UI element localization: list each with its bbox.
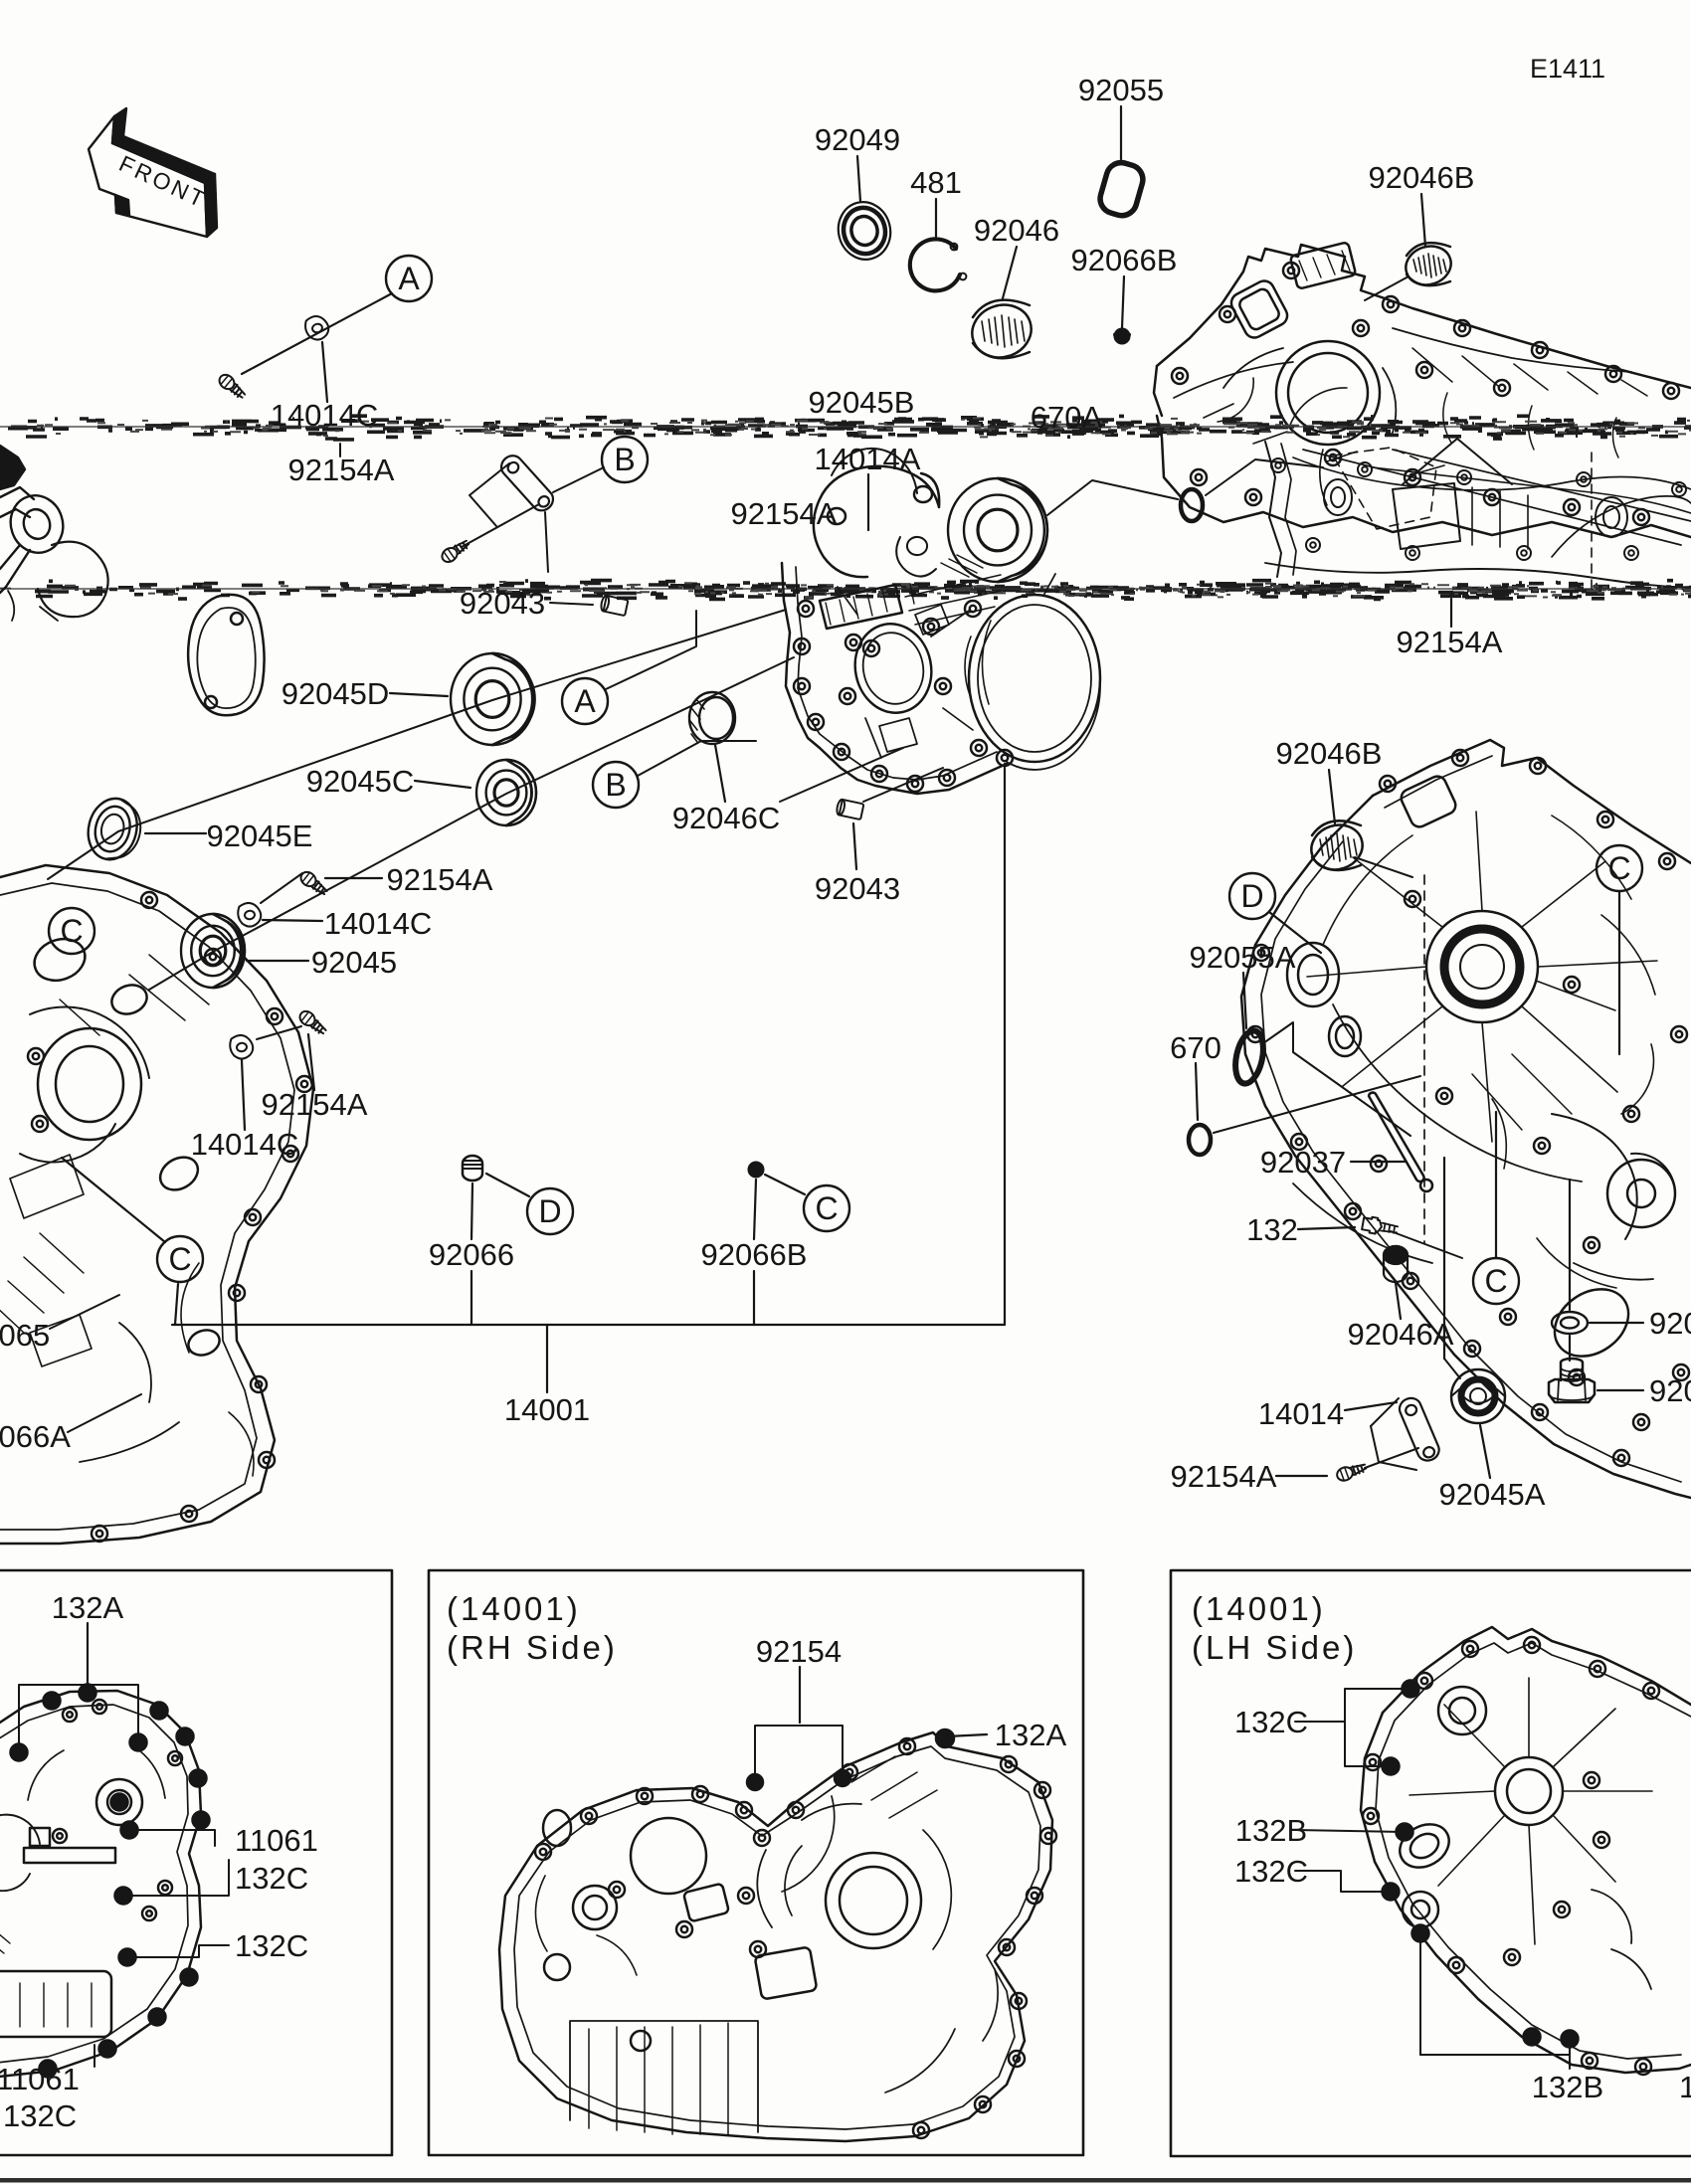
svg-text:132: 132	[1246, 1212, 1298, 1247]
svg-text:132C: 132C	[3, 2098, 77, 2133]
svg-text:A: A	[398, 261, 420, 296]
svg-text:92154A: 92154A	[387, 862, 493, 897]
svg-text:92154A: 92154A	[262, 1087, 368, 1122]
svg-text:E1411: E1411	[1530, 54, 1605, 84]
svg-text:92066B: 92066B	[701, 1237, 808, 1272]
svg-text:D: D	[1240, 878, 1263, 914]
svg-text:92045E: 92045E	[207, 819, 313, 853]
svg-text:132B: 132B	[1532, 2070, 1603, 2104]
svg-text:92154: 92154	[756, 1634, 842, 1669]
svg-text:92043: 92043	[815, 871, 900, 906]
svg-text:14014: 14014	[1258, 1396, 1344, 1431]
svg-text:92043: 92043	[460, 586, 545, 621]
svg-text:(14001): (14001)	[1192, 1590, 1326, 1627]
svg-text:B: B	[614, 442, 635, 477]
svg-text:11061: 11061	[0, 2062, 80, 2096]
svg-text:670A: 670A	[1031, 400, 1103, 435]
svg-text:92066: 92066	[429, 1237, 514, 1272]
svg-text:132C: 132C	[235, 1928, 308, 1963]
svg-text:92154A: 92154A	[1397, 625, 1503, 659]
svg-text:92046B: 92046B	[1369, 160, 1475, 195]
svg-text:481: 481	[910, 165, 962, 200]
svg-text:92066B: 92066B	[1071, 243, 1178, 277]
svg-text:132C: 132C	[235, 1861, 308, 1896]
svg-text:14014C: 14014C	[324, 906, 433, 941]
svg-text:A: A	[574, 683, 596, 719]
svg-text:92045: 92045	[311, 945, 397, 980]
svg-text:92066A: 92066A	[0, 1419, 71, 1454]
svg-text:92045B: 92045B	[809, 385, 915, 420]
svg-text:670: 670	[1170, 1030, 1221, 1065]
svg-text:92046B: 92046B	[1276, 736, 1383, 771]
svg-text:92066C: 92066C	[1649, 1373, 1691, 1408]
svg-text:11061: 11061	[235, 1823, 318, 1858]
svg-text:92045C: 92045C	[306, 764, 415, 799]
svg-text:B: B	[605, 767, 626, 803]
svg-text:14001: 14001	[504, 1392, 590, 1427]
svg-text:C: C	[1607, 850, 1630, 886]
svg-text:D: D	[538, 1193, 561, 1229]
svg-text:C: C	[815, 1190, 838, 1226]
svg-text:92045D: 92045D	[282, 676, 390, 711]
svg-text:92065: 92065	[0, 1318, 50, 1353]
svg-text:132A: 132A	[52, 1590, 124, 1625]
svg-text:92046C: 92046C	[672, 801, 781, 835]
svg-text:92045A: 92045A	[1439, 1477, 1546, 1512]
svg-text:92046: 92046	[974, 213, 1059, 248]
svg-text:92046A: 92046A	[1348, 1317, 1454, 1352]
svg-text:92055: 92055	[1078, 73, 1164, 107]
svg-text:(RH Side): (RH Side)	[447, 1629, 618, 1666]
svg-text:(LH Side): (LH Side)	[1192, 1629, 1357, 1666]
svg-text:92055A: 92055A	[1190, 940, 1296, 975]
svg-text:92049: 92049	[815, 122, 900, 157]
svg-text:C: C	[168, 1241, 191, 1277]
svg-text:92154A: 92154A	[731, 496, 838, 531]
svg-text:92154A: 92154A	[288, 453, 395, 487]
svg-text:92154A: 92154A	[1171, 1459, 1277, 1494]
svg-text:132A: 132A	[995, 1718, 1067, 1752]
svg-text:C: C	[1484, 1263, 1507, 1299]
svg-text:(14001): (14001)	[447, 1590, 581, 1627]
svg-text:14014C: 14014C	[271, 398, 379, 433]
svg-text:92065A: 92065A	[1649, 1306, 1691, 1341]
svg-text:132C: 132C	[1679, 2070, 1691, 2104]
svg-text:92037: 92037	[1260, 1145, 1346, 1180]
